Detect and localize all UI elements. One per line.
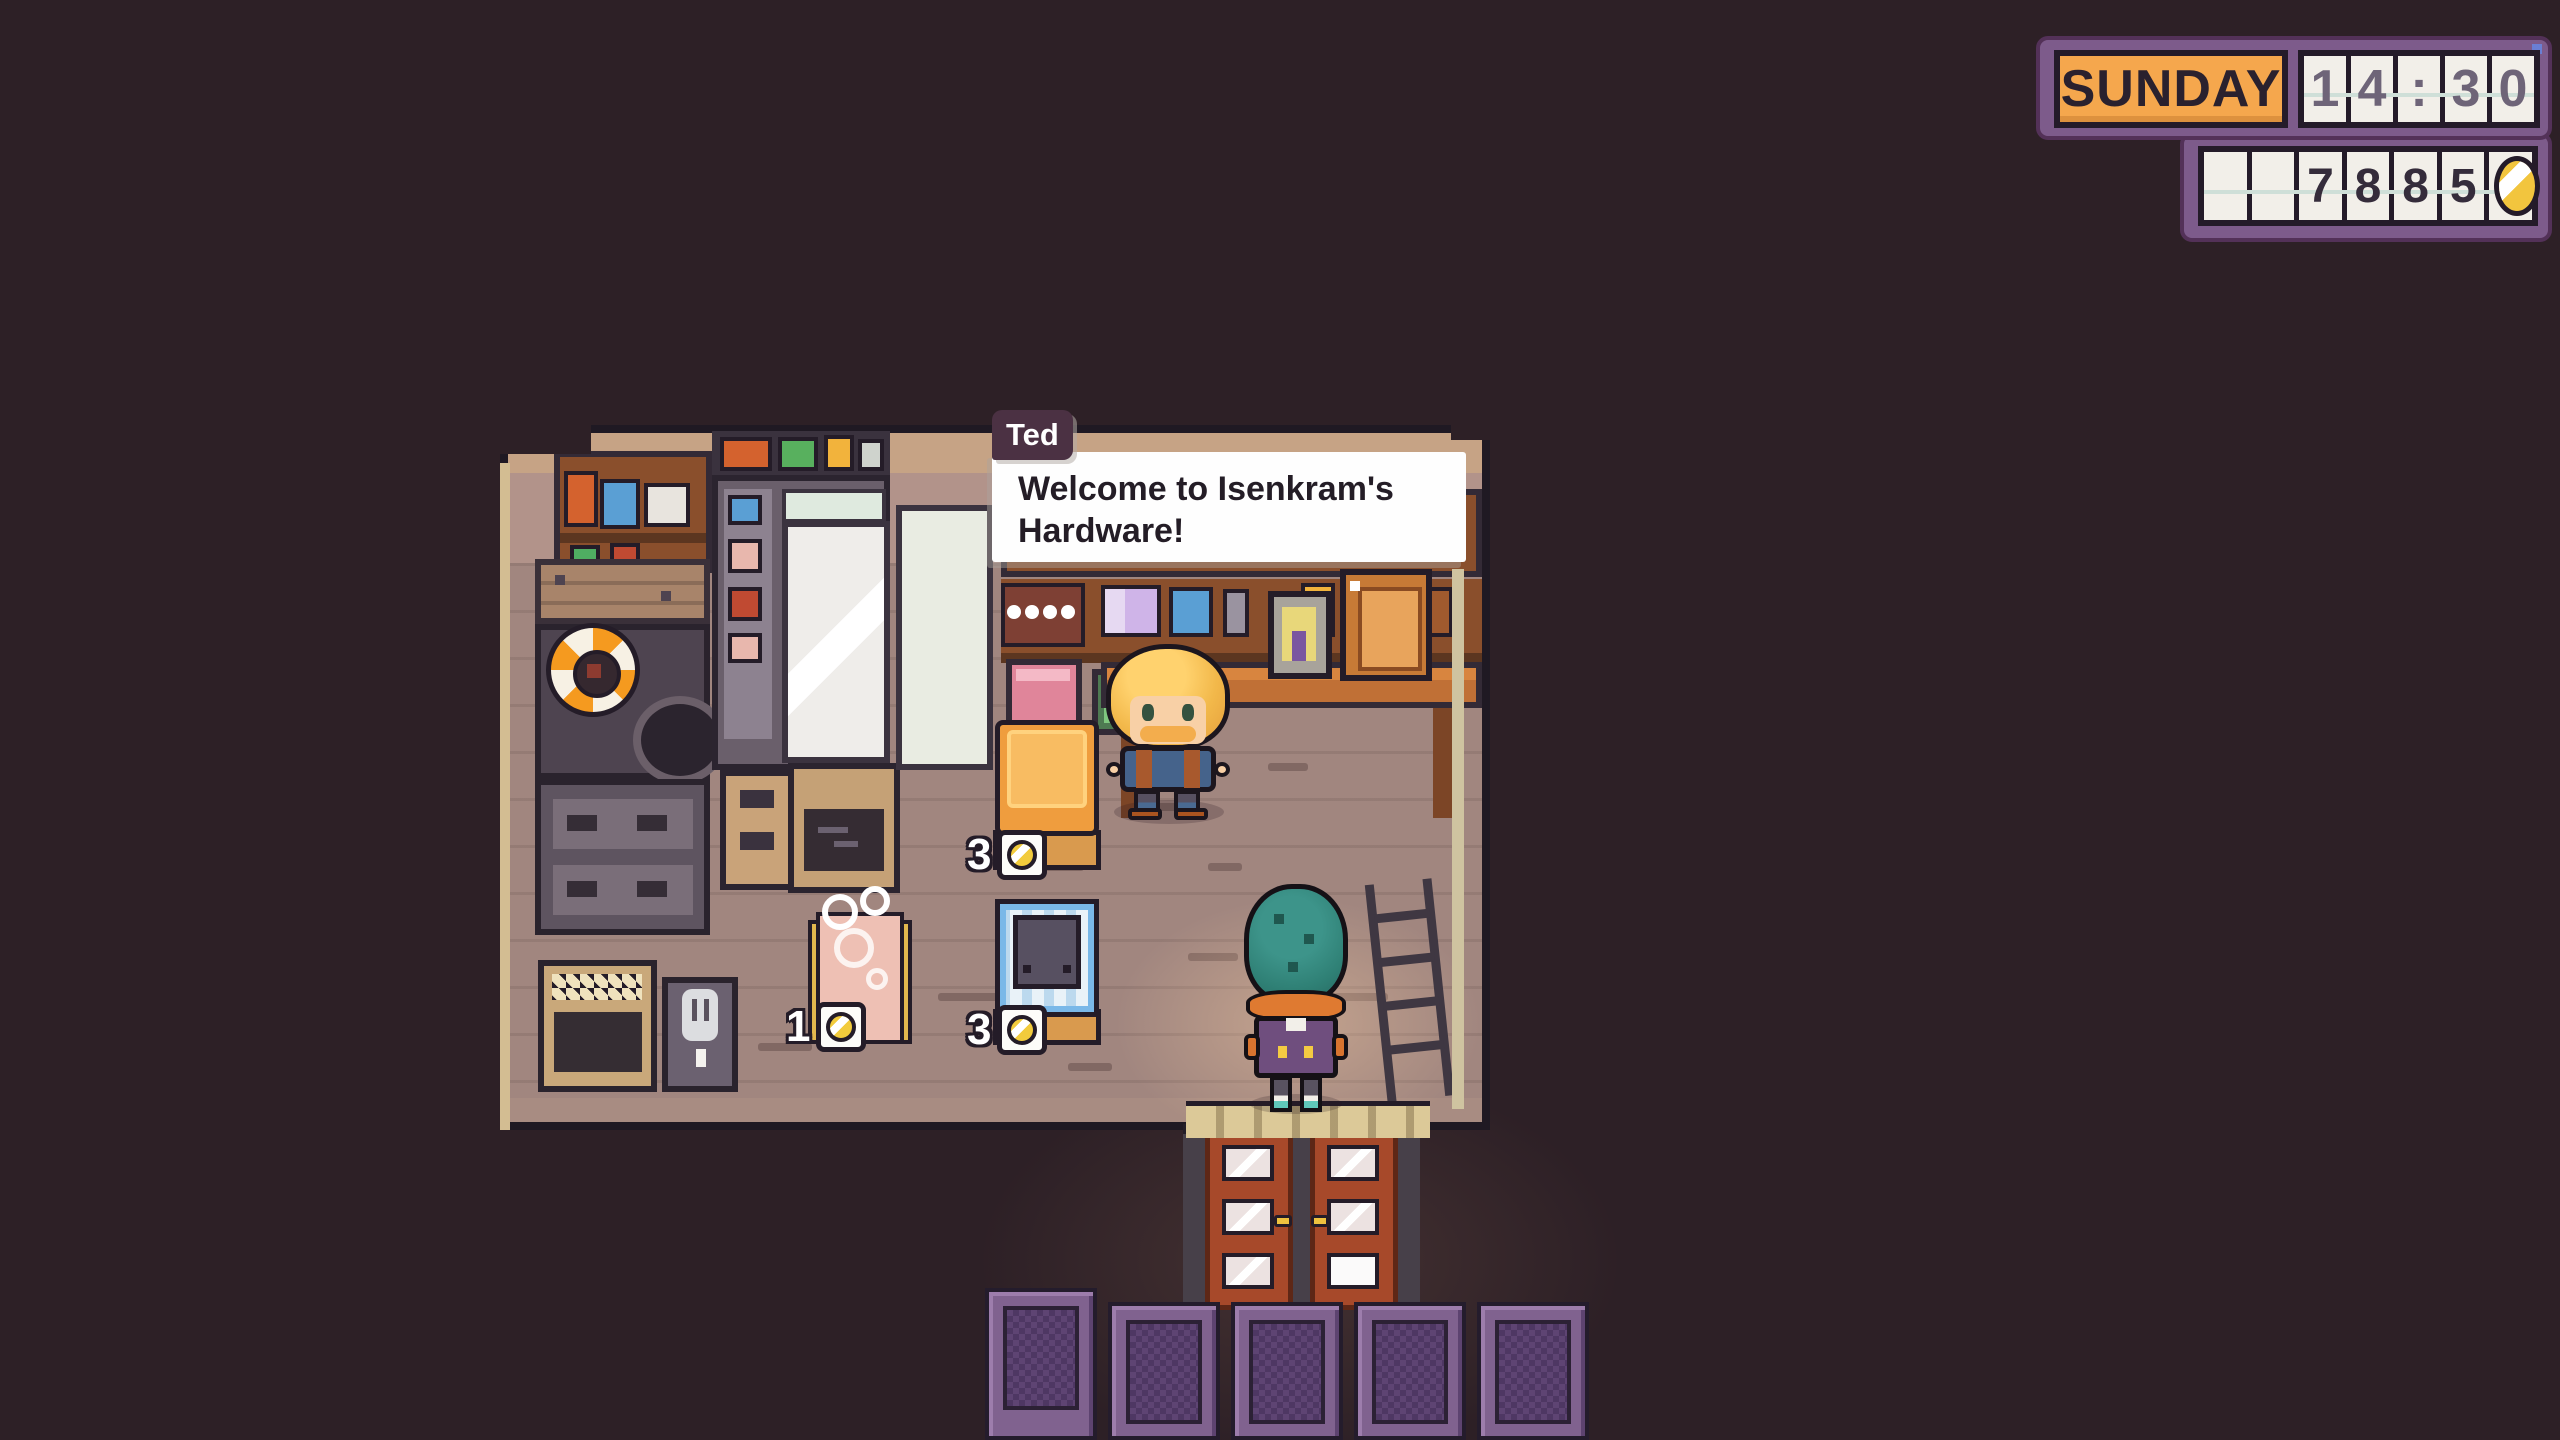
door-post — [1398, 1124, 1420, 1314]
ted-body — [1120, 746, 1216, 792]
wooden-crate — [535, 559, 710, 624]
dialogue-text: Welcome to Isenkram's Hardware! — [992, 452, 1466, 552]
amplifier — [538, 960, 657, 1092]
ted-suspender — [1184, 750, 1200, 788]
picture-frame-small — [1268, 591, 1332, 679]
money-coin-cell — [2484, 152, 2532, 220]
ted-shoe — [1174, 808, 1208, 820]
life-preserver — [546, 623, 640, 717]
fence-panel — [1108, 1302, 1220, 1440]
fridge-item — [728, 539, 762, 573]
speaker-name: Ted — [1006, 417, 1059, 453]
coin-icon — [1007, 1015, 1037, 1045]
price-value: 1 — [786, 1005, 810, 1049]
picture-frame-large — [1340, 569, 1432, 681]
top-cabinet — [712, 431, 890, 475]
sale-item-blue-crate[interactable]: 3 — [993, 899, 1101, 1045]
dialogue-speaker-tag: Ted — [992, 410, 1073, 460]
player-collar-patch — [1286, 1018, 1306, 1031]
time-digit-cell: 0 — [2487, 56, 2534, 122]
game-screen: 3 1 3 — [0, 0, 2560, 1440]
whiteboard — [896, 505, 993, 770]
ted-hand — [1106, 762, 1122, 777]
shelf-item — [778, 437, 818, 471]
shelf-item — [1101, 585, 1161, 637]
time-digit-cell: : — [2393, 56, 2440, 122]
player-leg — [1300, 1076, 1322, 1112]
hud-day-box: SUNDAY — [2054, 50, 2288, 128]
price-tag: 1 — [786, 1002, 866, 1052]
player-leg — [1270, 1076, 1292, 1112]
kiln-table — [788, 763, 900, 893]
player-hair — [1244, 884, 1348, 1004]
shelf-item — [858, 439, 884, 471]
price-tag: 3 — [967, 830, 1047, 880]
mask-machine — [662, 977, 738, 1092]
door-left[interactable] — [1205, 1132, 1293, 1310]
fence-panel — [1354, 1302, 1466, 1440]
fence-panel — [985, 1288, 1097, 1440]
ted-shoe — [1128, 808, 1162, 820]
shelf-item — [720, 437, 772, 471]
time-digit-cell: 1 — [2304, 56, 2346, 122]
roof-notch — [1451, 424, 1491, 440]
display-fridge — [712, 475, 890, 770]
metal-cabinet — [535, 779, 710, 935]
fridge-glass-door — [782, 521, 890, 763]
price-chip — [816, 1002, 866, 1052]
shelf-item — [1223, 589, 1249, 637]
shelf-item — [600, 479, 640, 529]
dialogue-box[interactable]: Welcome to Isenkram's Hardware! — [992, 452, 1466, 562]
door-handle — [1274, 1215, 1292, 1227]
door-handle — [1311, 1215, 1329, 1227]
coin-icon — [1007, 840, 1037, 870]
shelf-item — [564, 471, 598, 527]
ted-hand — [1214, 762, 1230, 777]
fence-panel — [1231, 1302, 1343, 1440]
hud-money-box: 7 8 8 5 — [2198, 146, 2538, 226]
price-chip — [997, 1005, 1047, 1055]
wall-right-edge — [1452, 569, 1464, 1109]
ted-eye — [1142, 704, 1154, 721]
door-post — [1293, 1124, 1311, 1314]
npc-ted[interactable] — [1102, 644, 1234, 820]
money-digit-cell: 8 — [2342, 152, 2390, 220]
door-post — [1183, 1124, 1205, 1314]
wall-left-edge — [500, 463, 510, 1130]
roof-notch — [499, 424, 591, 454]
price-value: 3 — [967, 833, 991, 877]
fence-panel — [1477, 1302, 1589, 1440]
hud-time-box: 1 4 : 3 0 — [2298, 50, 2540, 128]
shelf-item — [644, 483, 690, 527]
shelf-item — [824, 435, 854, 471]
fridge-item — [728, 587, 762, 621]
candy-display — [1001, 583, 1085, 647]
coin-icon — [2494, 156, 2540, 216]
money-digit-cell — [2204, 152, 2247, 220]
player-button — [1304, 1046, 1313, 1058]
time-digit-cell: 3 — [2440, 56, 2487, 122]
door-right[interactable] — [1310, 1132, 1398, 1310]
ted-mustache — [1140, 726, 1196, 742]
hud-day-label: SUNDAY — [2061, 59, 2282, 119]
player-hand — [1332, 1034, 1348, 1060]
price-value: 3 — [967, 1008, 991, 1052]
price-tag: 3 — [967, 1005, 1047, 1055]
fridge-item — [728, 495, 762, 525]
coin-icon — [826, 1012, 856, 1042]
sale-item-pink-tub[interactable]: 1 — [808, 894, 912, 1044]
money-digit-cell: 7 — [2294, 152, 2342, 220]
ted-eye — [1182, 704, 1194, 721]
sale-item-orange-machine[interactable]: 3 — [993, 720, 1101, 870]
money-digit-cell: 5 — [2437, 152, 2485, 220]
player-hand — [1244, 1034, 1260, 1060]
time-digit-cell: 4 — [2346, 56, 2393, 122]
player-button — [1278, 1046, 1287, 1058]
fridge-item — [728, 633, 762, 663]
shelf-item — [1169, 587, 1213, 637]
shelf-unit-left — [554, 451, 712, 573]
money-digit-cell: 8 — [2389, 152, 2437, 220]
player-character[interactable] — [1244, 884, 1348, 1112]
money-digit-cell — [2247, 152, 2295, 220]
price-chip — [997, 830, 1047, 880]
ted-suspender — [1136, 750, 1152, 788]
